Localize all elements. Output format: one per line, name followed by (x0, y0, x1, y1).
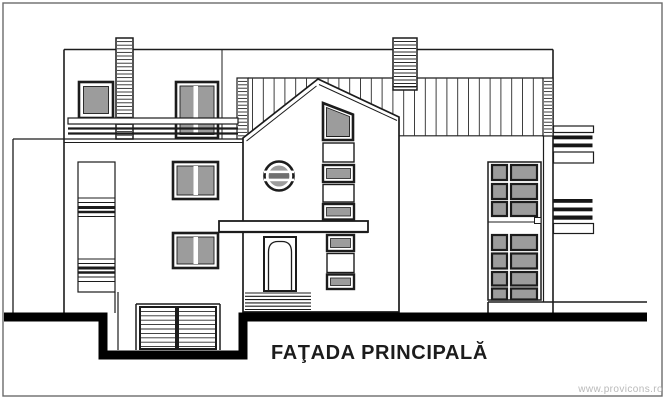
right-balcony-rail (554, 208, 593, 212)
right-window-pane (492, 235, 507, 250)
right-window-pane (492, 254, 507, 269)
right-balcony-rail (554, 216, 593, 220)
right-window-pane (492, 184, 507, 199)
drawing-title: FAŢADA PRINCIPALĂ (271, 342, 488, 365)
entrance-canopy (219, 221, 368, 232)
stack-panel (323, 143, 354, 162)
right-balcony-rail (554, 144, 593, 148)
round-window-stripe (264, 171, 294, 174)
right-balcony-rail (554, 199, 593, 203)
right-window-sill-step (535, 218, 542, 224)
hatched-pilaster-right (543, 78, 553, 136)
garage-door-left (140, 307, 176, 349)
right-balcony-rail (554, 136, 593, 140)
round-window-band (269, 173, 289, 178)
low-window-mullion (194, 237, 199, 264)
round-window-stripe (264, 179, 294, 182)
right-window-pane (511, 272, 537, 286)
chimney-right (393, 38, 417, 90)
upper-window-pane (84, 87, 109, 114)
right-balcony-slab (554, 126, 594, 133)
right-balcony-slab (554, 152, 594, 163)
facade-svg (0, 0, 668, 400)
right-window-pane (492, 289, 507, 300)
terrace-door-mullion (194, 86, 199, 135)
right-window-pane (511, 184, 537, 199)
watermark-text: www.provicons.ro (578, 384, 663, 395)
stack-window-pane (327, 169, 351, 179)
right-window-pane (511, 235, 537, 250)
right-balcony-slab (554, 224, 594, 234)
right-window-pane (511, 165, 537, 180)
right-window-pane (492, 272, 507, 286)
stack-window-pane (327, 208, 351, 217)
right-window-pane (511, 289, 537, 300)
stack-panel (323, 185, 354, 203)
facade-drawing: FAŢADA PRINCIPALĂ www.provicons.ro (0, 0, 668, 400)
stack-panel (327, 254, 354, 273)
right-window-pane (511, 202, 537, 216)
right-window-pane (511, 254, 537, 269)
stack-window-pane (331, 278, 351, 286)
garage-door-right (178, 307, 216, 349)
right-window-pane (492, 202, 507, 216)
balcony-slab-bar (68, 118, 238, 124)
mid-window-mullion (194, 166, 199, 195)
stack-window-pane (331, 239, 351, 248)
right-window-pane (492, 165, 507, 180)
